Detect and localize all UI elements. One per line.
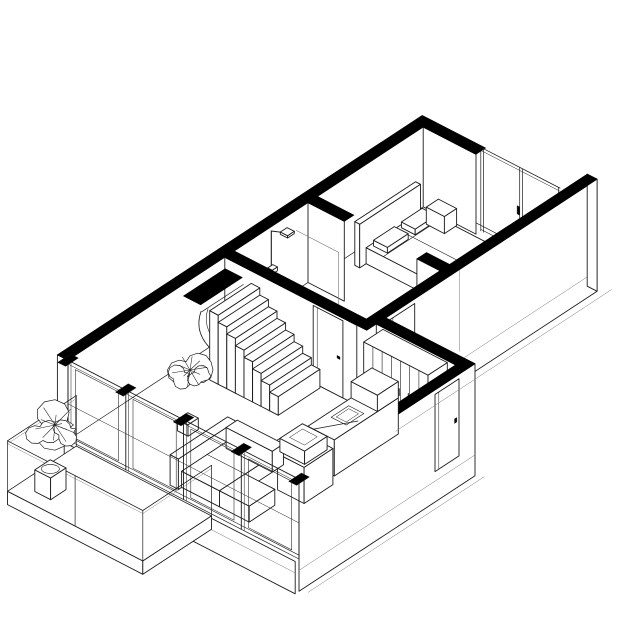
slider-top-rail-2 — [481, 150, 560, 191]
pot-rim — [41, 464, 59, 473]
slider-top-rail — [481, 147, 560, 188]
stair-step-left — [227, 334, 236, 393]
headboard-panel-left — [355, 222, 360, 268]
drawing-canvas — [0, 0, 640, 640]
slider-handle — [517, 206, 520, 216]
isometric-apartment-drawing — [0, 0, 640, 640]
stair-step-left — [261, 381, 270, 411]
stair-step-left — [235, 346, 244, 398]
stair-step-left — [253, 369, 262, 407]
stair-step-left — [218, 322, 227, 388]
wing-end-face — [587, 174, 597, 291]
stair-step-left — [244, 357, 253, 402]
